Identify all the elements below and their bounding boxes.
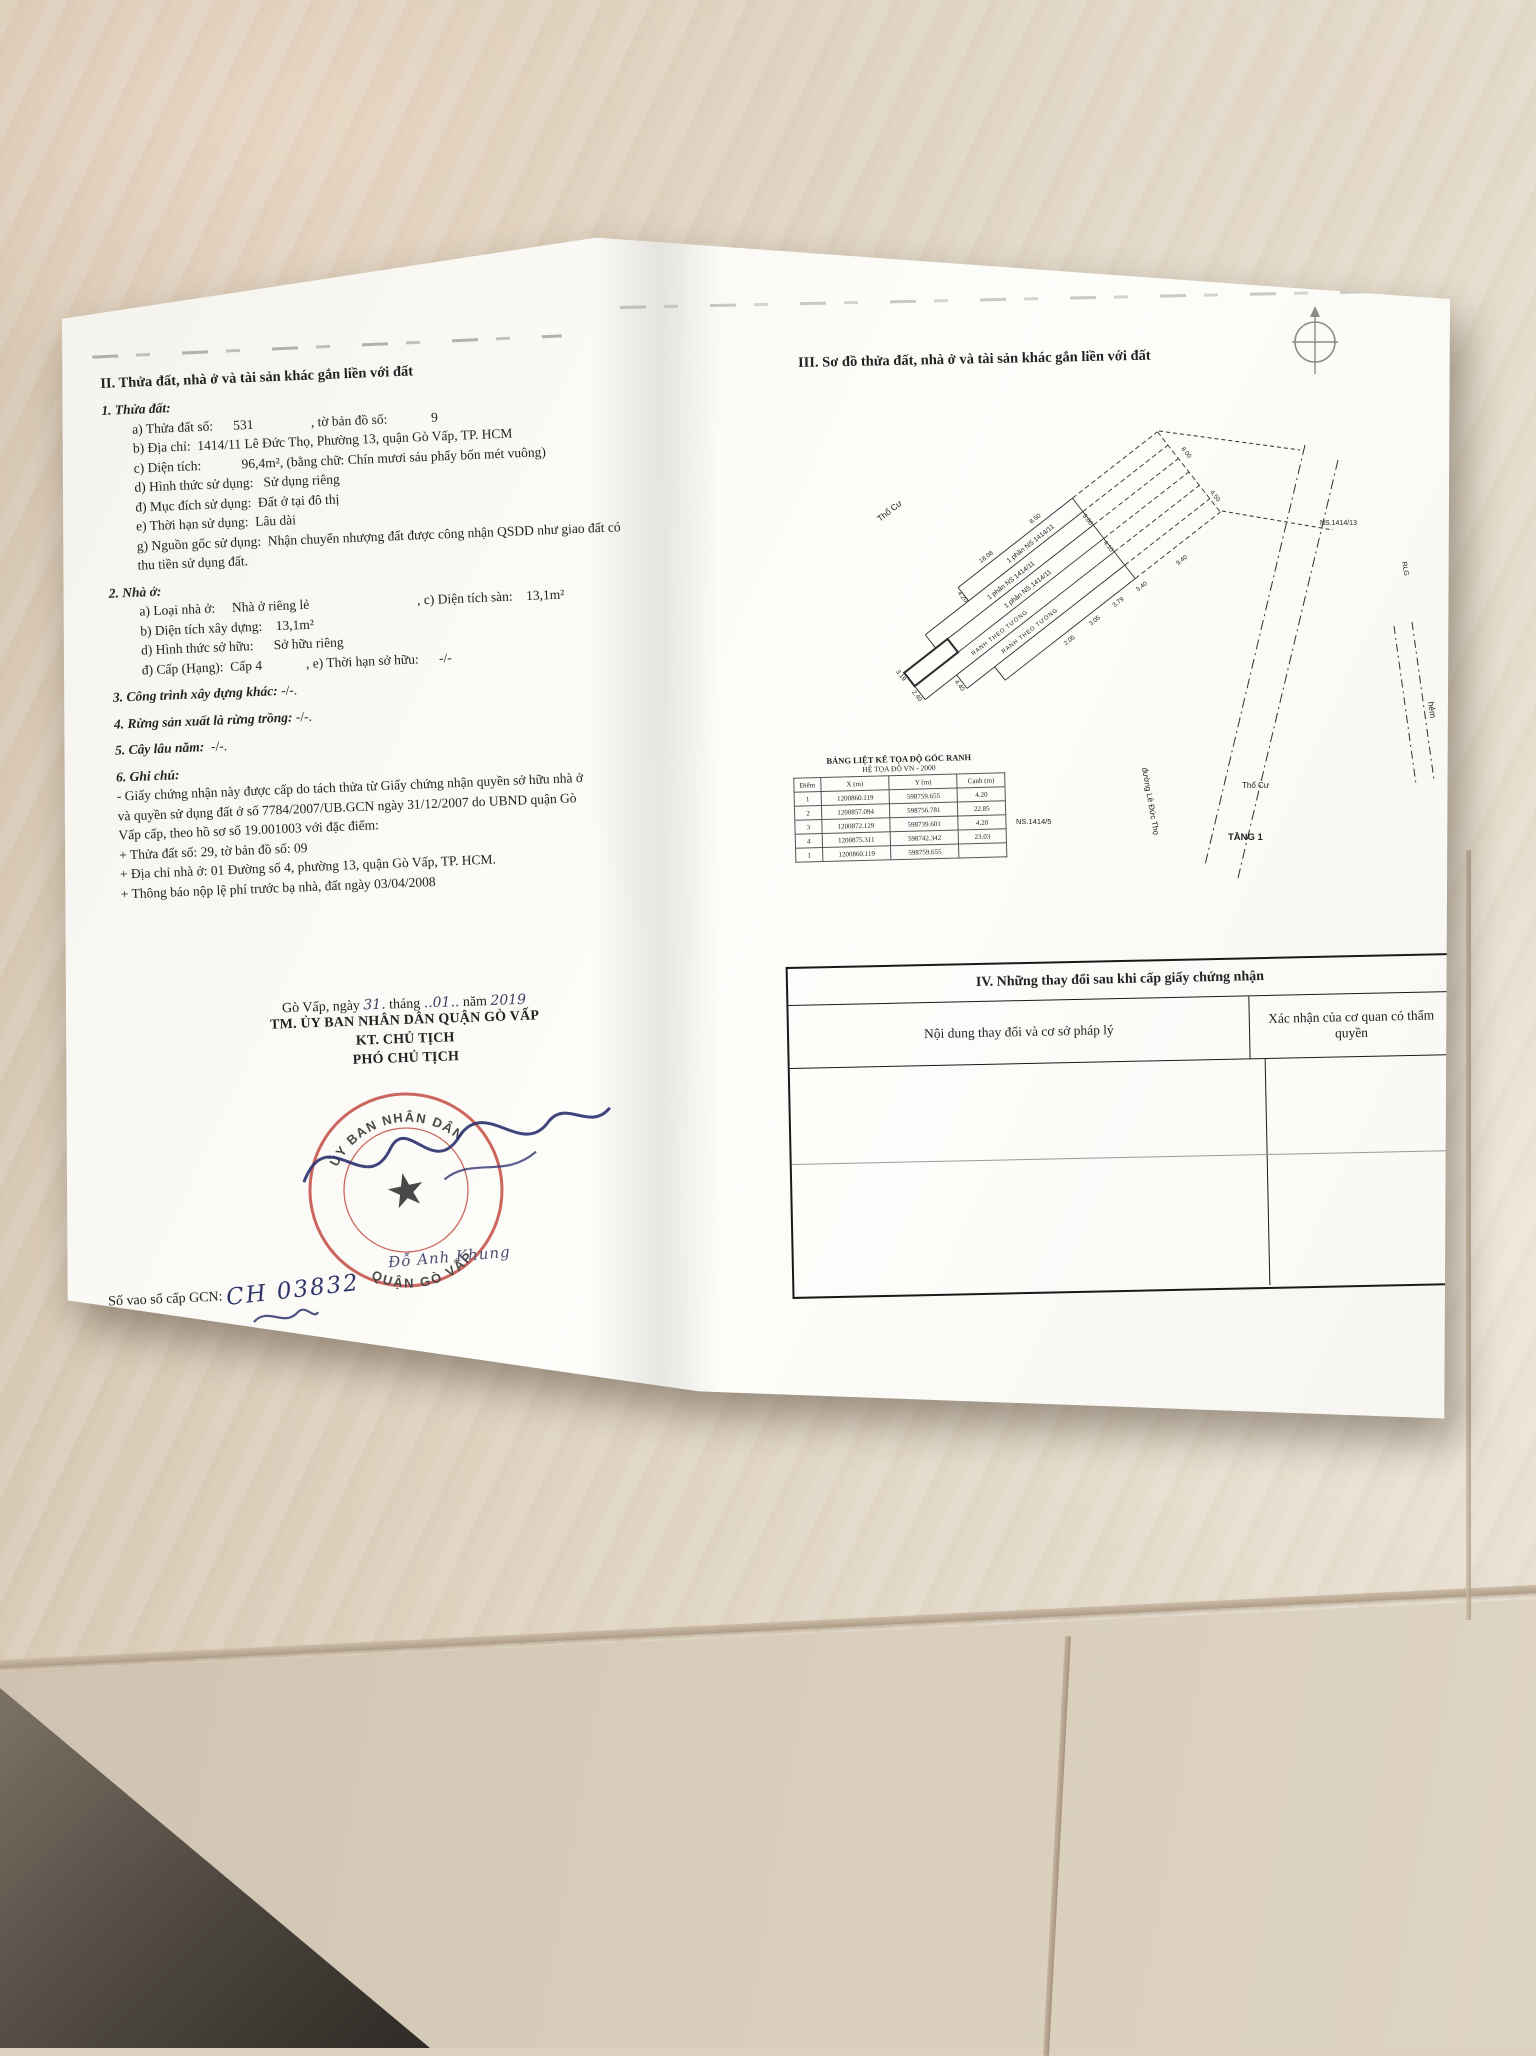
dim: 3.40 [1135,580,1149,593]
tho-cu-label-2: Thổ Cư [1242,781,1270,790]
certificate-paper: II. Thửa đất, nhà ở và tài sản khác gắn … [42,218,1470,1448]
signature-block: Gò Vấp, ngày 31. tháng ..01.. năm 2019 T… [169,988,641,1075]
s5-heading: 5. Cây lâu năm: [115,739,205,758]
boundary-label: RANH THEO TƯỜNG [970,609,1029,657]
section3-heading: III. Sơ đồ thửa đất, nhà ở và tài sản kh… [798,345,1278,372]
dim: 2.05 [1063,634,1077,647]
changes-table: IV. Những thay đổi sau khi cấp giấy chứn… [786,953,1461,1299]
s4-heading: 4. Rừng sản xuất là rừng trồng: [114,709,293,731]
parcel-label: 1 phần NS 1414/11 [985,558,1036,601]
parcel-strips: 1 phần NS 1414/11 1 phần NS 1414/11 1 ph… [871,416,1242,746]
cadastral-diagram: 1 phần NS 1414/11 1 phần NS 1414/11 1 ph… [780,380,1480,980]
ns-1414-13-label: NS.1414/13 [1320,520,1357,527]
changes-table-row-separator [792,1150,1456,1165]
left-page-content: II. Thửa đất, nhà ở và tài sản khác gắn … [100,355,637,903]
date-month-handwritten: ..01.. [423,994,459,1011]
dim: 8.00 [1179,446,1192,460]
date-day-handwritten: 31. [363,997,386,1014]
tho-cu-label-1: Thổ Cư [875,498,904,524]
s5-value: -/-. [211,738,228,754]
cell: 1200860.119 [822,846,891,862]
coordinate-table: BẢNG LIỆT KÊ TỌA ĐỘ GÓC RANH HỆ TỌA ĐỘ V… [793,751,1008,863]
cell: 1 [794,792,821,807]
cell [959,843,1007,858]
ns-1414-5-label: NS.1414/5 [1016,817,1051,826]
cell: 3 [795,820,822,835]
date-year-handwritten: 2019 [490,992,526,1009]
gcn-label: Số vao sổ cấp GCN: [108,1290,223,1310]
dim: 5.00 [1081,513,1094,527]
coord-table-grid: Điểm X (m) Y (m) Cạnh (m) 11200860.11959… [793,772,1007,863]
dashed-boundaries [1072,432,1220,579]
date-printed: Gò Vấp, ngày [282,998,364,1016]
cell: 598759.655 [891,844,960,860]
s3-value: -/-. [281,682,298,698]
dimension-labels: 18.08 8.50 3.19 2.40 4.40 4.20 5.00 4.10… [871,416,1242,746]
dim: 18.08 [978,549,995,565]
dim: 3.79 [1111,596,1125,609]
photo-of-land-certificate: { "left_page": { "section2_heading": "II… [0,0,1536,2048]
cell: 4.20 [958,815,1006,830]
hem-label: hẻm [1426,701,1438,719]
flourish-stroke [254,1310,318,1322]
dim: 4.10 [1102,540,1115,554]
paper-sheet: II. Thửa đất, nhà ở và tài sản khác gắn … [42,218,1470,1448]
cell: 22.85 [958,801,1006,816]
dim: 4.40 [953,679,966,693]
road-name-label: đường Lê Đức Thọ [1140,767,1161,836]
signature-flourish [443,1152,538,1180]
coord-h-diem: Điểm [794,778,821,793]
rlg-label: RLG [1400,561,1409,576]
dim: 9.40 [1175,554,1189,567]
subject-parcel-531 [904,639,958,686]
date-printed-2: tháng [385,996,424,1012]
dim: 4.50 [1208,489,1221,503]
changes-col-confirm-header: Xác nhận của cơ quan có thẩm quyền [1249,992,1454,1058]
tang-1-label: TẦNG 1 [1228,832,1264,843]
cell: 23.03 [959,829,1007,844]
dim: 2.40 [910,689,923,703]
gcn-comma-mark: , [115,1300,120,1318]
parcel-label: 1 phần NS 1414/11 [1002,567,1053,610]
road-lines [1159,431,1434,878]
date-printed-3: năm [459,994,491,1010]
changes-table-divider [1264,1059,1270,1285]
changes-table-body [790,1055,1459,1295]
dim: 3.05 [1088,614,1102,627]
photocopy-streak [620,290,1380,309]
gcn-underline-flourish [250,1304,324,1332]
cell: 2 [794,806,821,821]
photocopy-streak [92,334,562,358]
changes-col-content-header: Nội dung thay đổi và cơ sở pháp lý [788,996,1250,1068]
cell: 1 [796,848,823,863]
cell: 4.20 [957,787,1005,802]
north-compass-icon [1283,300,1347,378]
boundary-label: RANH THEO TƯỜNG [1000,607,1059,655]
compass-north-arrow [1310,306,1320,317]
cell: 4 [795,834,822,849]
s3-heading: 3. Công trình xây dựng khác: [113,683,278,705]
coord-h-canh: Cạnh (m) [957,773,1005,788]
s4-value: -/-. [296,708,313,724]
parcel-label: 1 phần NS 1414/11 [1005,522,1056,565]
